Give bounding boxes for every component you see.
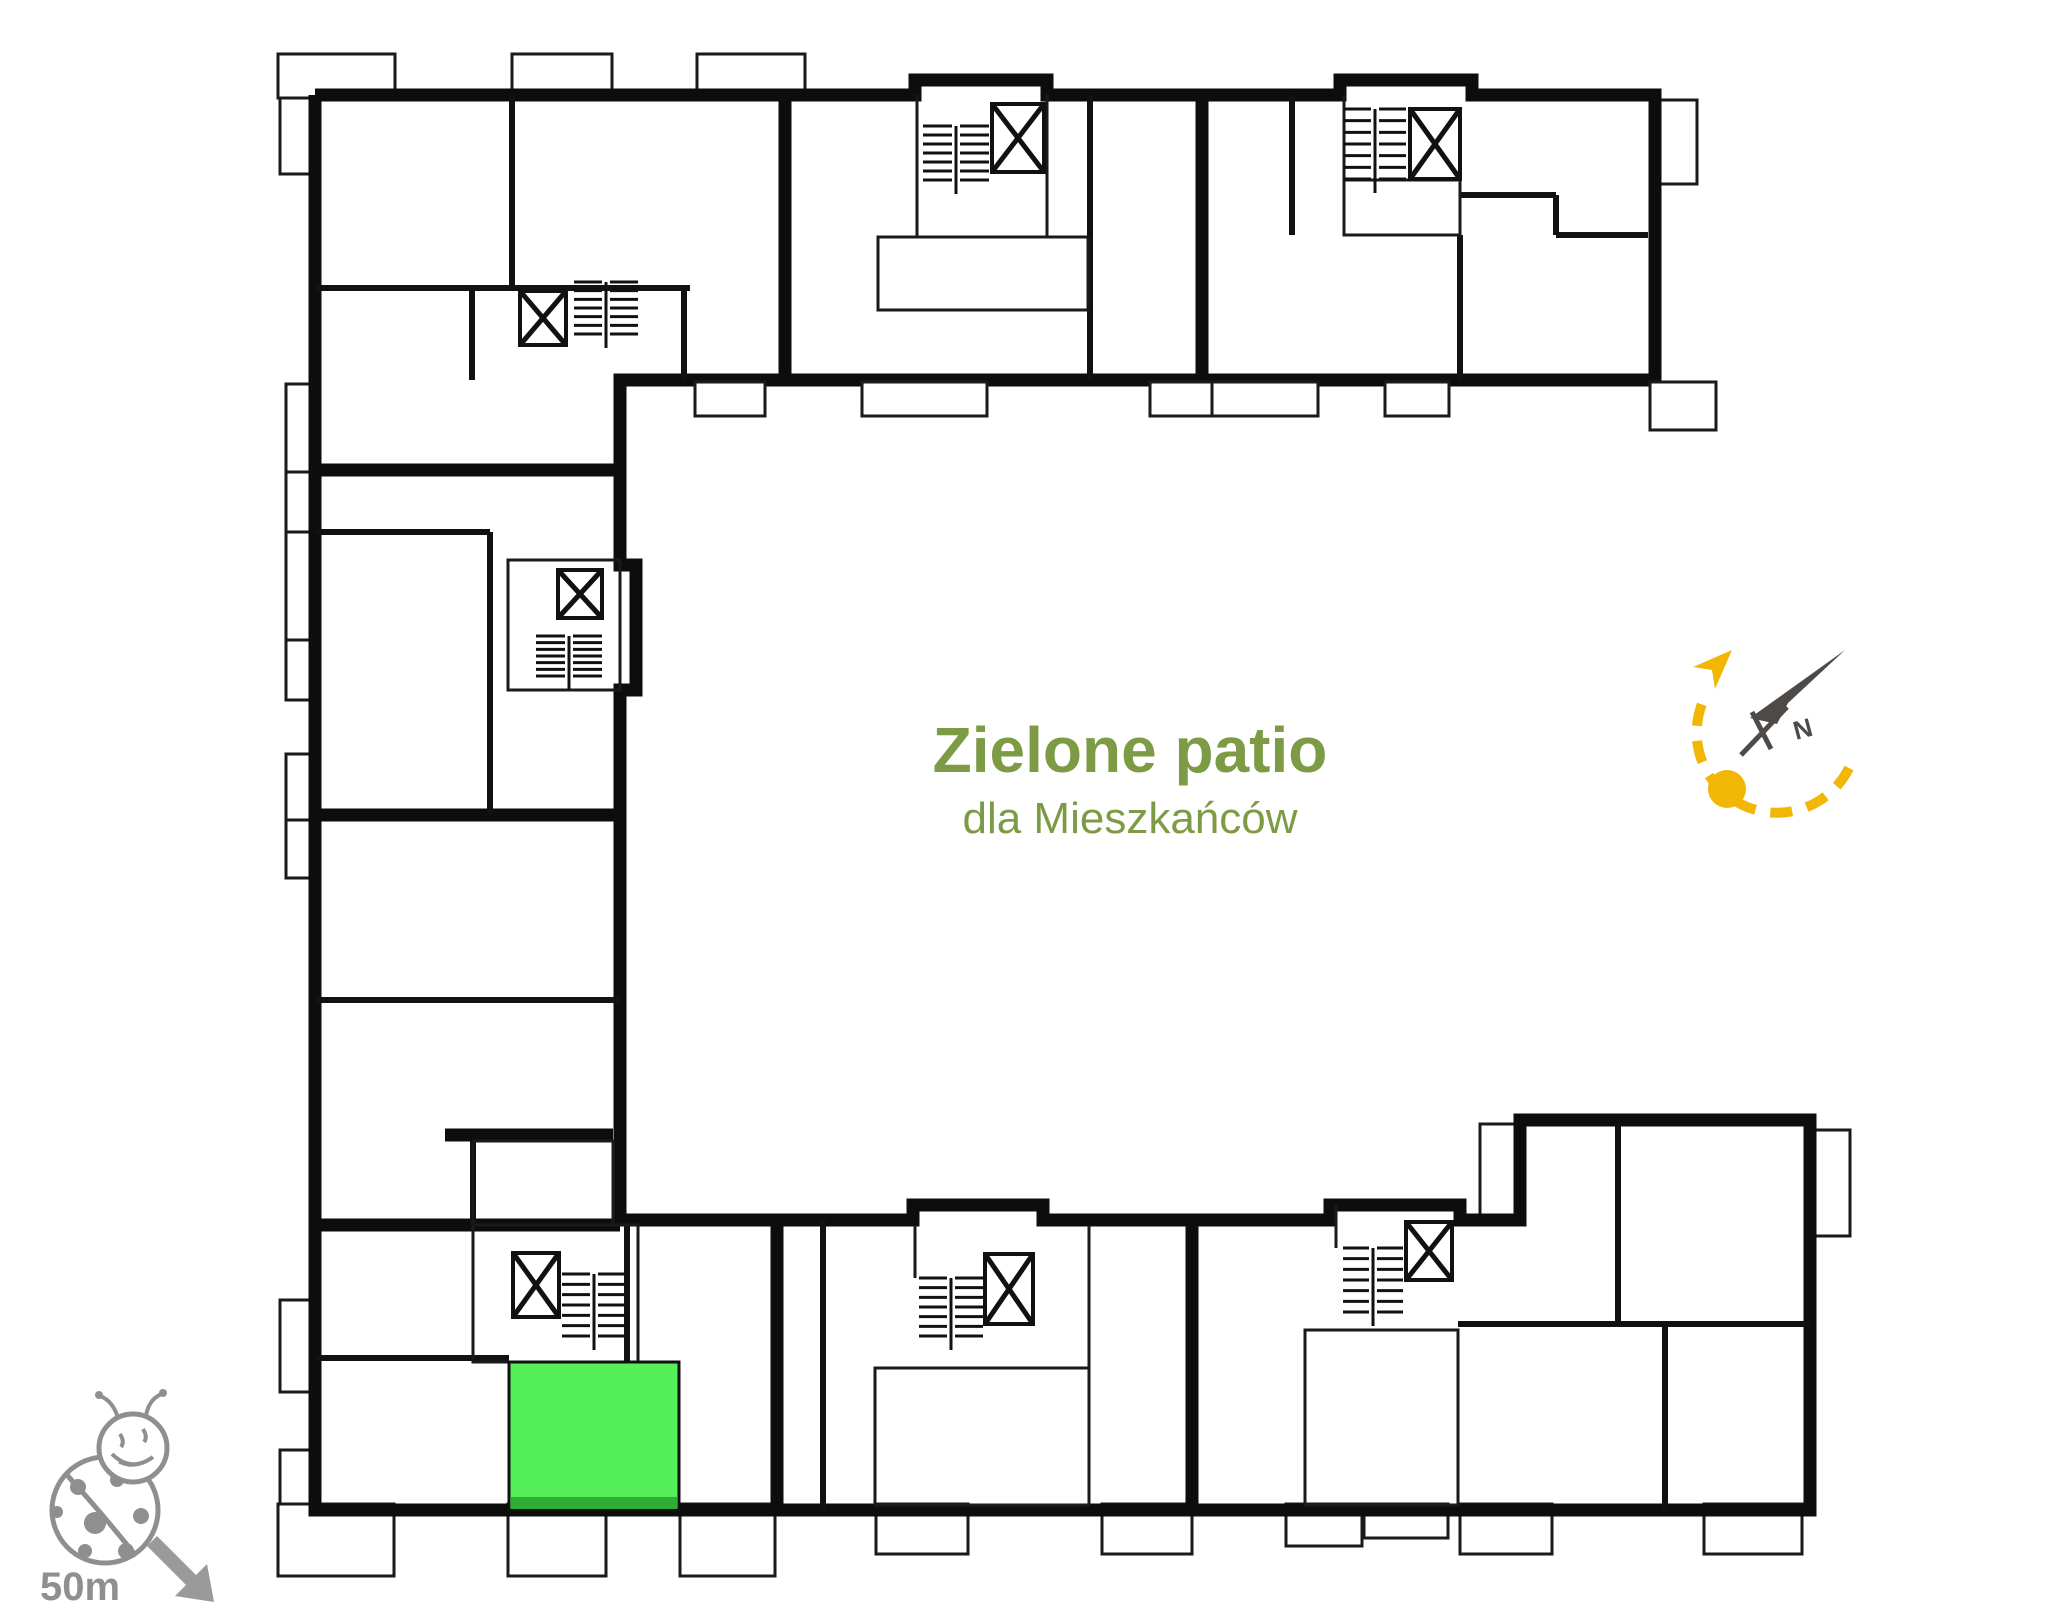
scale-indicator: 50m bbox=[40, 1389, 214, 1609]
vestibule bbox=[878, 237, 1088, 310]
vestibule bbox=[1344, 180, 1460, 235]
highlighted-apartment[interactable] bbox=[509, 1362, 679, 1510]
patio-title: Zielone patio bbox=[933, 714, 1328, 786]
compass: N bbox=[1693, 650, 1849, 813]
vestibule bbox=[473, 1141, 613, 1225]
staircase-icon bbox=[1344, 109, 1406, 193]
balcony bbox=[862, 382, 987, 416]
patio-balconies bbox=[695, 382, 1716, 430]
vestibule bbox=[1305, 1330, 1458, 1505]
balcony bbox=[1385, 382, 1449, 416]
north-needle-icon bbox=[1750, 650, 1845, 724]
balcony bbox=[1150, 382, 1212, 416]
elevator-icon bbox=[1410, 109, 1460, 179]
elevator-icon bbox=[992, 104, 1044, 172]
scale-label: 50m bbox=[40, 1565, 120, 1609]
elevator-icon bbox=[513, 1253, 559, 1317]
sun-dot-icon bbox=[1708, 770, 1746, 808]
floor-plan-canvas: Zielone patio dla Mieszkańców N bbox=[0, 0, 2048, 1623]
north-label: N bbox=[1790, 712, 1816, 746]
staircase-icon bbox=[562, 1274, 626, 1350]
staircase-icon bbox=[574, 282, 638, 348]
staircase-icon bbox=[923, 126, 989, 194]
floor-plan-page: Zielone patio dla Mieszkańców N bbox=[0, 0, 2048, 1623]
staircase-icon bbox=[919, 1278, 983, 1350]
scale-direction-arrow-icon bbox=[147, 1536, 214, 1602]
elevator-icon bbox=[1406, 1222, 1452, 1280]
vestibule bbox=[875, 1368, 1089, 1505]
patio-subtitle: dla Mieszkańców bbox=[962, 794, 1297, 843]
balcony bbox=[1650, 382, 1716, 430]
elevator-icon bbox=[985, 1254, 1033, 1324]
balcony bbox=[695, 382, 765, 416]
staircase-icon bbox=[536, 636, 602, 690]
elevator-icon bbox=[558, 570, 602, 618]
balcony bbox=[1212, 382, 1318, 416]
staircase-icon bbox=[1343, 1248, 1403, 1326]
ladybug-icon bbox=[51, 1389, 167, 1563]
sun-arrow-icon bbox=[1693, 650, 1732, 689]
elevator-icon bbox=[520, 291, 566, 345]
